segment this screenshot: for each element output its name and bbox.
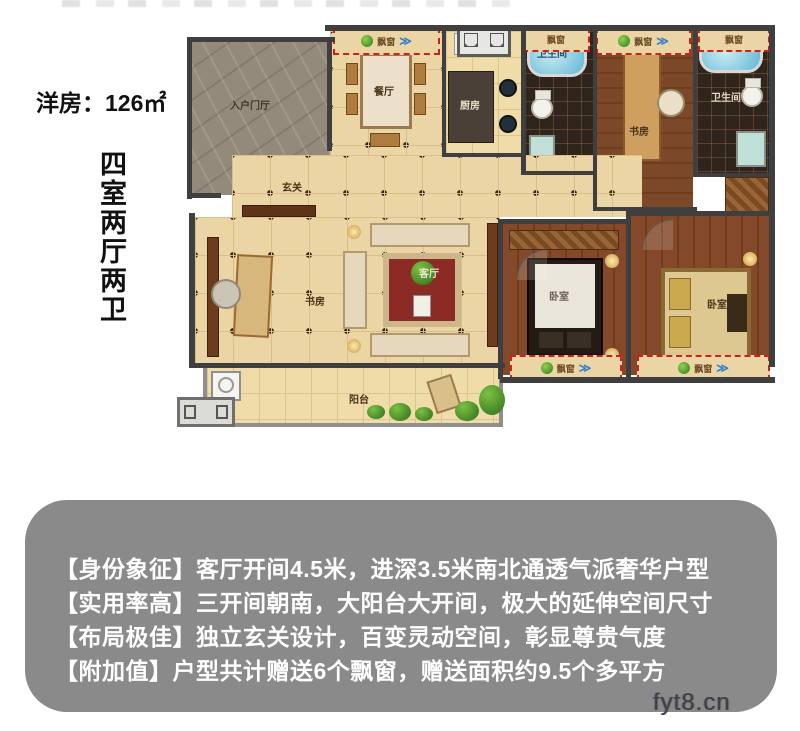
bay-window-label: 飘窗 [377,35,395,48]
plant-icon [389,403,411,421]
room-label: 玄关 [282,179,302,194]
chair [346,93,358,115]
room-label: 餐厅 [374,83,394,98]
layout-type-label: 四室两厅两卫 [92,150,131,324]
sideboard [242,205,316,217]
coffee-table [413,295,431,317]
room-label: 卧室 [549,288,569,303]
blue-arrow-icon: ≫ [656,35,669,47]
elevator-box [177,397,235,427]
sofa [370,223,470,247]
wall [693,173,775,177]
closet [725,177,769,213]
bed-bench [727,294,747,332]
floor-plan: 入户门厅 餐厅 厨房 卫生间 [175,25,775,432]
bay-window-label: 飘窗 [694,362,712,375]
area-label: 洋房：126㎡ [36,84,166,118]
sofa [343,251,367,329]
cropped-title-remnant [62,0,512,7]
room-bathroom-2: 卫生间 [697,31,769,173]
washing-machine-door [218,377,234,393]
wall [187,193,221,198]
room-label: 书房 [305,293,325,308]
bay-window: 飘窗 ≫ [333,27,440,55]
bay-window-label: 飘窗 [547,33,565,46]
toilet [741,85,763,107]
lamp [347,225,361,239]
stove-burner [499,115,517,133]
plant-icon [618,35,630,47]
chair [211,279,241,309]
chair [346,63,358,85]
tv-cabinet [487,223,498,347]
balcony: 阳台 [203,367,503,427]
bay-window-label: 飘窗 [557,362,575,375]
pillow [669,278,691,310]
blue-arrow-icon: ≫ [716,362,729,374]
wall [442,153,522,157]
pillow [669,316,691,348]
desk [623,49,661,161]
wall [593,31,597,211]
room-label: 卫生间 [711,89,741,104]
plant-icon [678,362,690,374]
room-label: 入户门厅 [230,97,270,112]
toilet [531,97,553,119]
door-arc [643,220,673,250]
shower [736,131,766,167]
plant-icon [415,407,433,421]
room-label: 卧室 [707,296,727,311]
blue-arrow-icon: ≫ [579,362,592,374]
wall [500,219,630,224]
lamp [605,254,619,268]
pillow [539,332,563,348]
room-living-study: 书房 客厅 [195,217,500,365]
wall [693,31,697,177]
wardrobe [509,230,619,250]
wall [630,211,773,216]
wall [189,213,195,367]
chair [370,133,400,147]
chair [657,89,685,117]
feature-card: 【身份象征】客厅开间4.5米，进深3.5米南北通透气派奢华户型 【实用率高】三开… [25,500,777,712]
wall [769,25,775,367]
bay-window: 飘窗 ≫ [596,27,691,55]
room-bedroom-1: 卧室 [503,224,626,375]
elevator-symbol [184,405,196,419]
lamp [743,252,757,266]
chair [414,93,426,115]
wall [500,377,775,383]
plant-icon [479,385,505,415]
room-label: 阳台 [349,391,369,406]
wall [189,363,505,368]
wall [521,171,597,175]
room-bathroom-1: 卫生间 [525,31,593,171]
plant-icon [541,362,553,374]
stove-burner [499,79,517,97]
room-bedroom-2: 卧室 [631,216,769,375]
room-label: 书房 [629,123,649,138]
feature-line: 【布局极佳】独立玄关设计，百变灵动空间，彰显尊贵气度 [55,618,666,652]
lamp [347,339,361,353]
plant-icon [361,35,373,47]
bay-window-label: 飘窗 [725,33,743,46]
pillow [567,332,591,348]
site-watermark: fyt8.cn [653,689,731,717]
hallway: 玄关 [232,155,642,217]
wall [521,31,526,175]
wall [498,219,503,379]
elevator-symbol [216,405,228,419]
sofa [370,333,470,357]
feature-line: 【实用率高】三开间朝南，大阳台大开间，极大的延伸空间尺寸 [55,584,713,618]
bay-window-label: 飘窗 [634,35,652,48]
plant-icon [367,405,385,419]
wall [626,211,631,379]
door-arc [517,250,547,280]
feature-line: 【身份象征】客厅开间4.5米，进深3.5米南北通透气派奢华户型 [55,550,709,584]
wall [325,25,775,31]
room-label: 客厅 [419,265,439,280]
stair-symbol [464,33,478,47]
wall [442,31,446,157]
room-label: 厨房 [460,97,480,112]
plant-icon [455,401,479,421]
wall [327,37,332,151]
wall [187,37,192,199]
blue-arrow-icon: ≫ [399,35,412,47]
feature-line: 【附加值】户型共计赠送6个飘窗，赠送面积约9.5个多平方 [55,652,666,686]
wall [187,37,335,42]
page: 洋房：126㎡ 四室两厅两卫 入户门厅 餐厅 厨房 [0,0,800,731]
stair-symbol [490,33,504,47]
chair [414,63,426,85]
